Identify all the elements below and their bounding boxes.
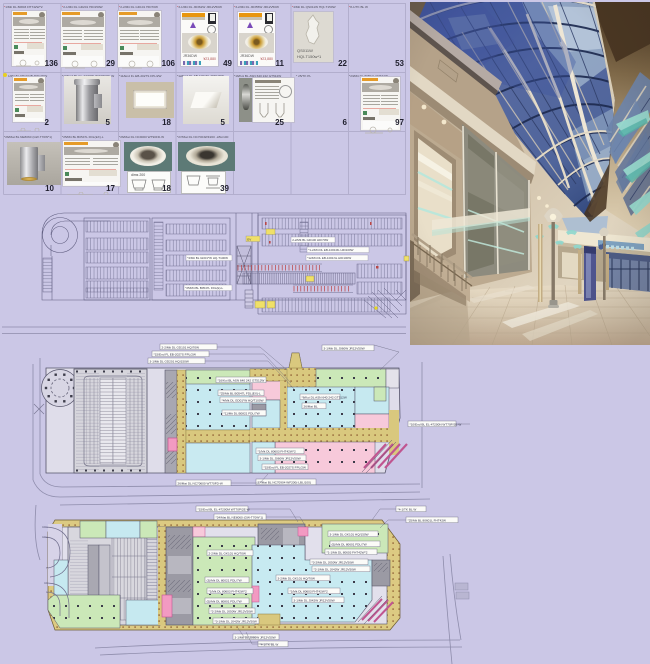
svg-text:3-1/Mit DL J042W JR12V50W: 3-1/Mit DL J042W JR12V50W <box>294 599 335 603</box>
svg-text:*1/Mit DL 80603 FHT42W*2: *1/Mit DL 80603 FHT42W*2 <box>209 590 248 594</box>
svg-text:*1-1/Mit DL 80603 FHT42W*2: *1-1/Mit DL 80603 FHT42W*2 <box>327 551 368 555</box>
svg-text:(5)/Mit DL 80601 FDL/7W: (5)/Mit DL 80601 FDL/7W <box>332 543 367 547</box>
svg-text:*3-2/Mit DL J050W JR12V50W: *3-2/Mit DL J050W JR12V50W <box>312 561 354 565</box>
svg-text:3-1/Mit DL GK101 HQ/150W: 3-1/Mit DL GK101 HQ/150W <box>330 533 369 537</box>
svg-text:(3)/Mit DL 80021 FDL/7W: (3)/Mit DL 80021 FDL/7W <box>207 579 242 583</box>
svg-text:*2-1/Mit DL J042W JR12V50W: *2-1/Mit DL J042W JR12V50W <box>314 568 356 572</box>
svg-text:*25/Mit BL 80601L FHT42W: *25/Mit BL 80601L FHT42W <box>408 519 447 523</box>
svg-text:*4-1/TK BL W: *4-1/TK BL W <box>398 508 417 512</box>
svg-text:*15/End BL EL-47200M WT70P/2E-: *15/End BL EL-47200M WT70P/2E-W <box>198 508 250 512</box>
svg-text:*1/Mit DL 80603 FHT42W*2: *1/Mit DL 80603 FHT42W*2 <box>290 590 329 594</box>
svg-text:2-2/Mit DL GK101 HQ/70W: 2-2/Mit DL GK101 HQ/70W <box>209 552 246 556</box>
svg-text:*3-1/Mit DL J042W JR12V50W: *3-1/Mit DL J042W JR12V50W <box>215 620 257 624</box>
svg-text:(5)/Mit DL 80801 FDL/7W: (5)/Mit DL 80801 FDL/7W <box>207 600 242 604</box>
svg-text:*4-1/TK BL W: *4-1/TK BL W <box>260 643 279 647</box>
svg-text:3-2/Mit DL GK101 HQ/70W: 3-2/Mit DL GK101 HQ/70W <box>278 577 315 581</box>
svg-text:*24/Mat BL NE8060 (GW-T70W*1): *24/Mat BL NE8060 (GW-T70W*1) <box>216 516 264 520</box>
svg-text:*2-2/Mit DL J050W JR12V50W: *2-2/Mit DL J050W JR12V50W <box>211 610 253 614</box>
svg-text:3-1/Mit DL J060W JR12V50W: 3-1/Mit DL J060W JR12V50W <box>235 636 276 640</box>
